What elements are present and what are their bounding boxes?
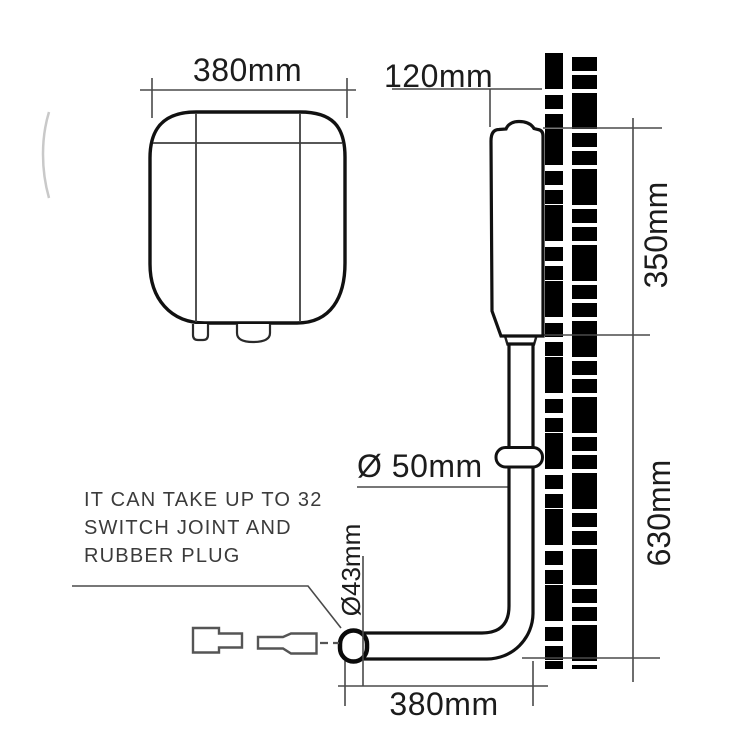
label-tank-depth: 120mm bbox=[384, 58, 493, 95]
label-install-height: 630mm bbox=[642, 443, 676, 583]
pipe-collar-joint bbox=[496, 448, 543, 468]
rubber-plug-part bbox=[258, 634, 317, 654]
label-pipe-diameter: Ø 50mm bbox=[357, 448, 483, 485]
front-view-tank bbox=[150, 112, 345, 342]
side-view-pipe bbox=[340, 336, 543, 662]
leader-note bbox=[72, 586, 341, 628]
scan-artifact bbox=[43, 112, 49, 198]
front-tank-outlet-flush bbox=[237, 324, 270, 342]
label-outlet-diameter: Ø43mm bbox=[337, 505, 365, 635]
side-tank-outline bbox=[491, 122, 543, 337]
capacity-note: IT CAN TAKE UP TO 32 SWITCH JOINT AND RU… bbox=[84, 486, 323, 570]
capacity-note-line3: RUBBER PLUG bbox=[84, 542, 323, 570]
wall-hatch bbox=[545, 53, 597, 669]
switch-joint-part bbox=[193, 628, 242, 653]
front-tank-outlet-small bbox=[193, 324, 208, 340]
label-pipe-length-bottom: 380mm bbox=[344, 686, 544, 723]
diagram-canvas: 380mm 120mm 350mm 630mm Ø 50mm Ø43mm 380… bbox=[0, 0, 750, 750]
capacity-note-line1: IT CAN TAKE UP TO 32 bbox=[84, 486, 323, 514]
flush-pipe bbox=[343, 344, 533, 659]
technical-drawing-svg bbox=[0, 0, 750, 750]
accessories bbox=[193, 628, 339, 654]
label-tank-height: 350mm bbox=[639, 165, 673, 305]
capacity-note-line2: SWITCH JOINT AND bbox=[84, 514, 323, 542]
label-tank-width-top: 380mm bbox=[145, 52, 350, 89]
